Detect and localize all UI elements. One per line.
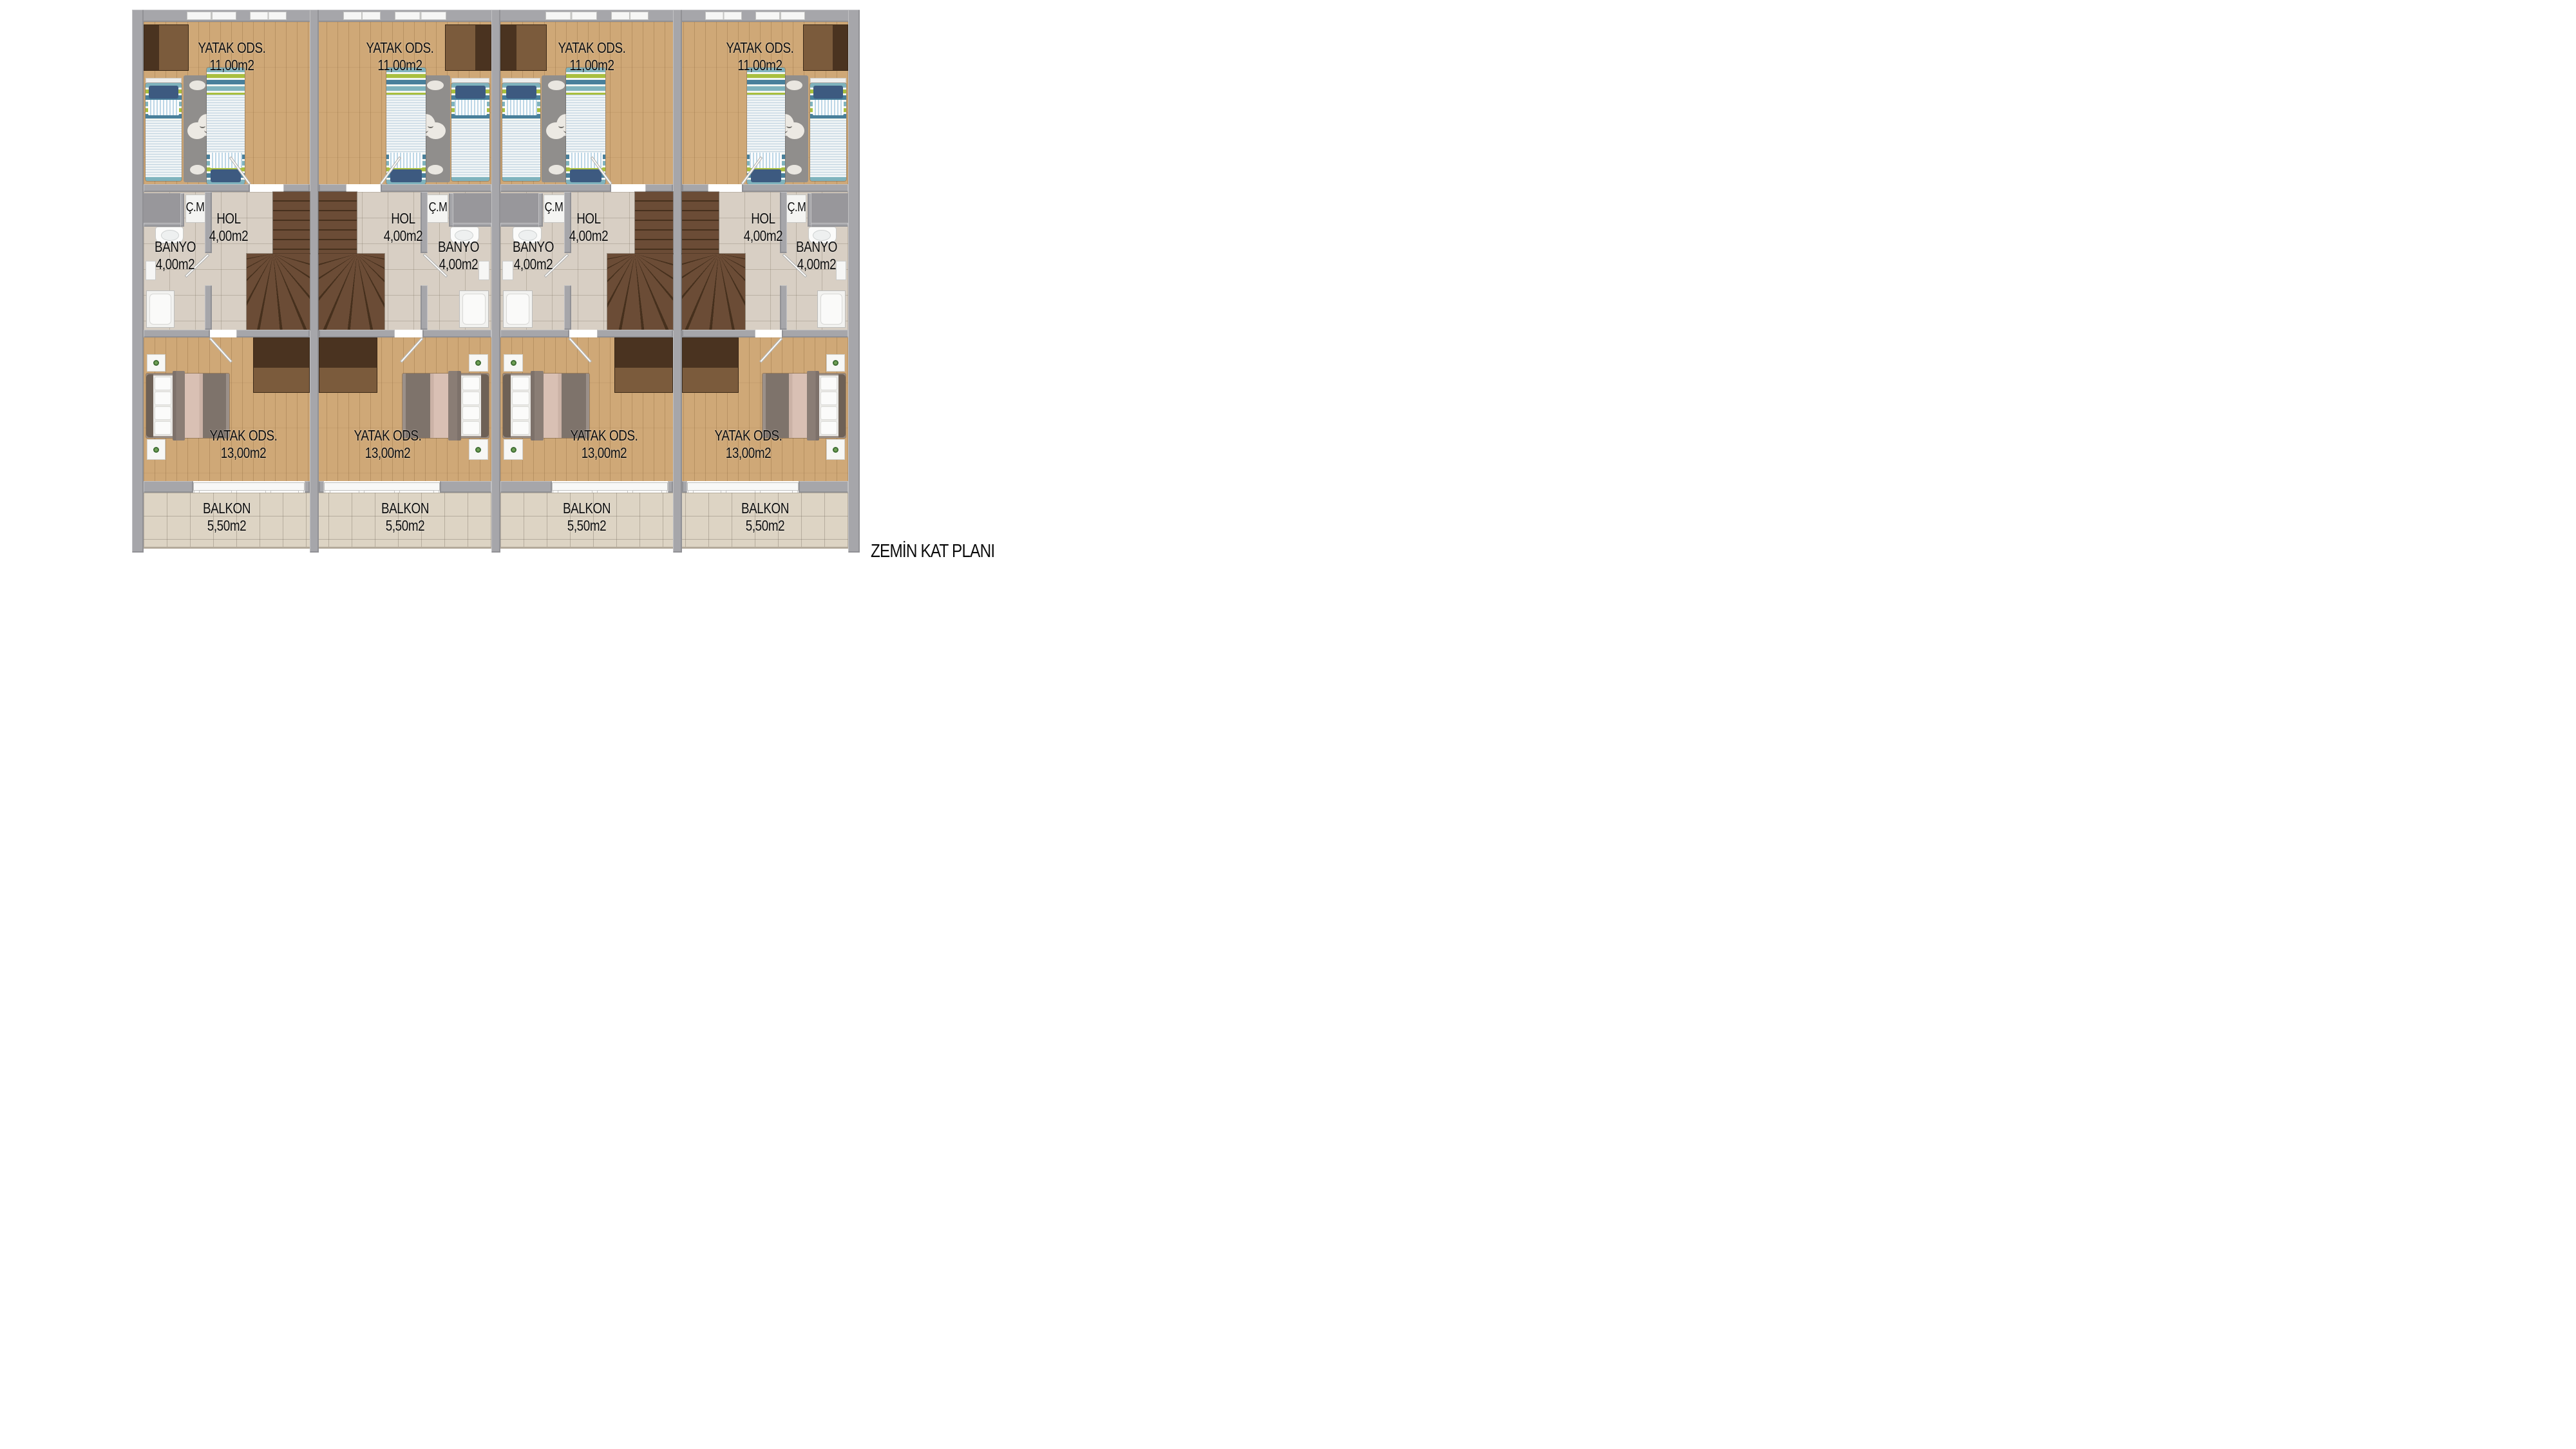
window [545,12,597,20]
headboard [838,374,846,437]
party-wall-1 [310,10,319,553]
shower-tray [146,290,175,328]
plant [833,360,838,366]
pillows [511,375,531,436]
single-bed [810,83,847,181]
washing-machine-cabinet [185,194,207,223]
nightstand [504,439,522,460]
wall-segment [742,184,848,192]
exterior-wall-left [132,10,144,553]
wall-segment [500,481,552,493]
wall-segment [449,193,453,227]
headboard [481,374,489,437]
nightstand [826,439,844,460]
pillow [149,86,178,99]
wall-segment [799,481,848,493]
duvet [747,95,785,153]
unit-2-graphics [319,10,491,553]
wall-segment [564,285,571,330]
stair-winder [607,254,673,330]
wall-segment [421,192,428,253]
single-bed [451,83,489,181]
water-heater [478,261,489,280]
cloud-shape [189,80,205,90]
stair-flight [273,192,310,254]
nightstand [147,439,165,460]
sink [155,227,184,243]
pillow [455,100,487,115]
gray-blanket [562,374,586,438]
staircase [319,192,384,330]
blanket-drape [448,371,461,440]
double-bed [762,374,846,438]
pillow [148,100,179,115]
nightstand [469,354,488,372]
plant [475,447,481,453]
cloud-shape [428,165,443,175]
wardrobe [500,24,547,71]
window [705,12,742,20]
pillow [505,100,537,115]
window [343,12,381,20]
wardrobe [144,24,189,71]
headboard-shelf [810,78,847,83]
unit-2: YATAK ODS.11,00m2 Ç.M HOL4,00m2 BANYO4,0… [319,10,491,553]
single-bed [146,83,182,181]
duvet [566,95,606,153]
wall-segment [597,330,673,337]
sink [450,227,480,243]
wall-segment [205,285,211,330]
headboard-shelf [146,78,182,83]
unit-1: YATAK ODS.11,00m2 Ç.M HOL4,00m2 BANYO4,0… [144,10,310,553]
washing-machine-cabinet [426,194,448,223]
wall-segment [421,285,428,330]
wall-segment [180,193,184,227]
double-bed [503,374,589,438]
wardrobe [614,337,673,393]
staircase [607,192,673,330]
wall-segment [381,184,491,192]
plant [511,360,516,366]
nightstand [826,354,844,372]
wall-segment [808,193,811,227]
nightstand [469,439,488,460]
wardrobe [253,337,310,393]
floor-plan: YATAK ODS.11,00m2 Ç.M HOL4,00m2 BANYO4,0… [0,0,1030,580]
shower-tray [503,290,533,328]
window [187,12,236,20]
blanket-drape [807,371,819,440]
staircase [682,192,745,330]
stair-winder [247,254,310,330]
party-wall-2 [491,10,500,553]
unit-3: YATAK ODS.11,00m2 Ç.M HOL4,00m2 BANYO4,0… [500,10,673,553]
pillow [813,100,844,115]
plant [511,447,516,453]
storage-nook [500,193,538,223]
wall-segment [144,330,210,337]
storage-nook [144,193,180,223]
duvet [146,120,182,177]
window [611,12,649,20]
cloud-shape [787,165,801,175]
wall-segment [682,330,755,337]
wall-segment [500,330,569,337]
washing-machine-cabinet [544,194,566,223]
page-title: ZEMİN KAT PLANI [871,541,994,562]
wall-segment [440,481,491,493]
water-heater [836,261,847,280]
balcony-floor [144,493,310,549]
pink-throw [430,374,448,438]
wall-segment [780,192,786,253]
sink [808,227,837,243]
cloud-shape [786,80,802,90]
balcony-window-band [193,482,305,491]
cloud-shape [427,80,444,90]
window [395,12,446,20]
gray-blanket [203,374,226,438]
plant [475,360,481,366]
balcony-window-band [687,482,799,491]
pillow [751,169,781,182]
plant [153,360,159,366]
headboard-shelf [502,78,540,83]
wall-segment [319,184,346,192]
wardrobe [445,24,491,71]
wardrobe [682,337,739,393]
balcony-window-band [552,482,668,491]
wall-segment [305,481,310,493]
gray-blanket [406,374,430,438]
pillow [506,86,536,99]
storage-nook [453,193,491,223]
stair-winder [682,254,745,330]
staircase [247,192,310,330]
wall-segment [538,193,543,227]
balcony-floor [319,493,491,549]
pillow [390,169,422,182]
sink [513,227,542,243]
pink-throw [544,374,562,438]
pillows [819,375,838,436]
pillow [813,86,842,99]
pillow [570,169,601,182]
headboard [503,374,511,437]
shower-tray [817,290,846,328]
pink-throw [185,374,202,438]
wall-segment [564,192,571,253]
window [250,12,287,20]
headboard-shelf [451,78,489,83]
double-bed [402,374,489,438]
balcony-window-band [324,482,440,491]
duvet [207,95,245,153]
plant [833,447,838,453]
cloud-shape [548,80,565,90]
blanket-drape [173,371,185,440]
pillow [211,169,241,182]
wall-segment [283,184,310,192]
wall-segment [500,184,611,192]
pillows [461,375,481,436]
water-heater [146,261,156,280]
duvet [810,120,847,177]
nightstand [147,354,165,372]
blanket-drape [531,371,544,440]
wall-segment [682,481,687,493]
washing-machine-cabinet [785,194,807,223]
wall-segment [782,330,848,337]
stair-flight [319,192,357,254]
stair-flight [682,192,719,254]
wardrobe [803,24,848,71]
wall-segment [645,184,673,192]
wall-segment [144,184,250,192]
pillows [153,375,173,436]
wardrobe [319,337,377,393]
balcony-floor [500,493,673,549]
wall-segment [144,481,193,493]
unit-1-graphics [144,10,310,553]
cloud-shape [549,165,563,175]
balcony-floor [682,493,848,549]
unit-4: YATAK ODS.11,00m2 Ç.M HOL4,00m2 BANYO4,0… [682,10,848,553]
single-bed [502,83,540,181]
wall-segment [422,330,491,337]
gray-blanket [766,374,789,438]
duvet [386,95,426,153]
wall-segment [682,184,708,192]
shower-tray [459,290,489,328]
exterior-wall-right [848,10,860,553]
wall-segment [319,481,324,493]
plant [153,447,159,453]
nightstand [504,354,522,372]
window [755,12,805,20]
wall-segment [319,330,395,337]
double-bed [146,374,229,438]
water-heater [502,261,513,280]
duvet [502,120,540,177]
headboard [146,374,154,437]
party-wall-3 [673,10,682,553]
storage-nook [811,193,848,223]
unit-3-graphics [500,10,673,553]
pink-throw [789,374,806,438]
wall-segment [668,481,673,493]
stair-winder [319,254,384,330]
stair-flight [635,192,673,254]
cloud-shape [190,165,204,175]
duvet [451,120,489,177]
wall-segment [780,285,786,330]
unit-4-graphics [682,10,848,553]
wall-segment [236,330,310,337]
pillow [455,86,486,99]
wall-segment [205,192,211,253]
